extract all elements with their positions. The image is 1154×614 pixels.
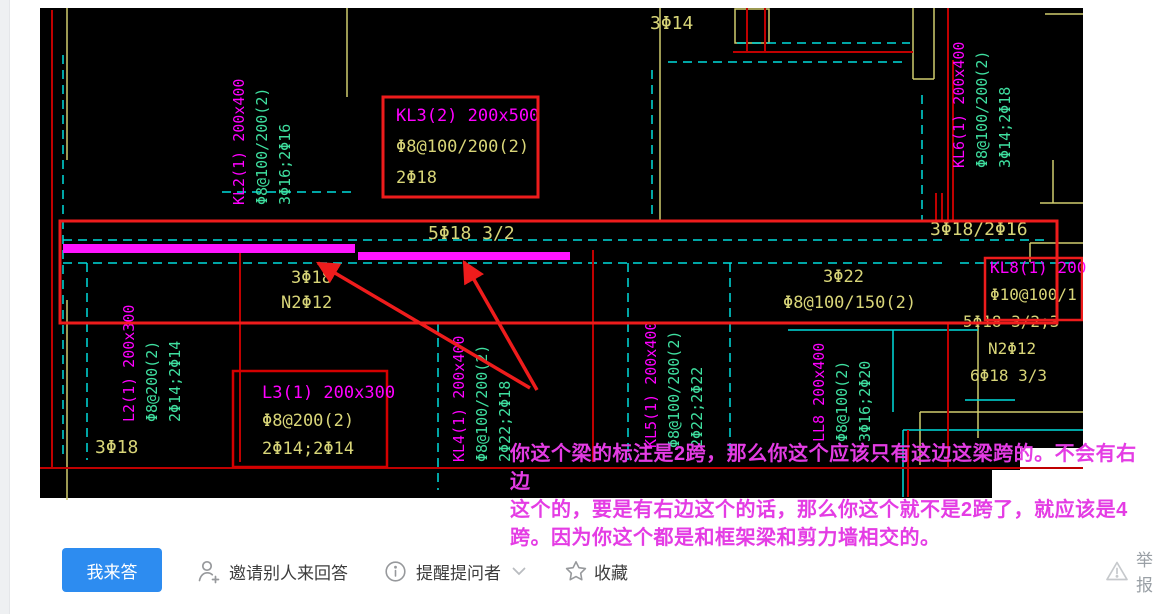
cad-canvas: [40, 8, 1083, 448]
beam-label-l3: L3(1) 200x300 Φ8@200(2) 2Φ14;2Φ14: [262, 379, 395, 463]
beam-rebar: 3Φ16;2Φ16: [274, 79, 297, 205]
beam-stirrup: Φ8@100/200(2): [663, 322, 686, 448]
beam-label-kl2: KL2(1) 200x400 Φ8@100/200(2) 3Φ16;2Φ16: [228, 79, 297, 205]
beam-label-ll8: LL8 200x400 Φ8@100(2) 3Φ16;2Φ20: [808, 343, 877, 442]
invite-label: 邀请别人来回答: [229, 559, 348, 584]
beam-bottom-bars: 6Φ18 3/3: [963, 362, 1086, 389]
beam-name: KL5(1) 200x400: [640, 322, 663, 448]
annotation-line-1: 你这个梁的标注是2跨，那么你这个应该只有这边这梁跨的。不会有右边: [510, 440, 1154, 496]
note-bottomleft-3phi18: 3Φ18: [95, 437, 138, 458]
favorite-label: 收藏: [594, 559, 628, 584]
invite-to-answer-button[interactable]: 邀请别人来回答: [196, 556, 348, 586]
beam-label-kl6: KL6(1) 200x400 Φ8@100/200(2) 3Φ14;2Φ18: [948, 42, 1017, 168]
remind-asker-button[interactable]: 提醒提问者: [384, 556, 526, 586]
note-mid-phi8: Φ8@100/150(2): [783, 290, 916, 316]
beam-name: KL4(1) 200x400: [448, 336, 471, 462]
remind-label: 提醒提问者: [416, 559, 501, 584]
beam-name: KL8(1) 200: [963, 254, 1086, 281]
beam-label-l2: L2(1) 200x300 Φ8@200(2) 2Φ14;2Φ14: [118, 305, 187, 422]
report-label: 举报: [1136, 546, 1154, 596]
answer-annotation-text: 你这个梁的标注是2跨，那么你这个应该只有这边这梁跨的。不会有右边 这个的，要是有…: [510, 440, 1154, 552]
beam-rebar: 3Φ16;2Φ20: [854, 343, 877, 442]
beam-rebar: 2Φ14;2Φ14: [262, 435, 395, 463]
beam-stirrup: Φ8@100/200(2): [971, 42, 994, 168]
favorite-button[interactable]: 收藏: [564, 556, 628, 586]
beam-stirrup: Φ8@100(2): [831, 343, 854, 442]
beam-rebar: 2Φ14;2Φ14: [164, 305, 187, 422]
beam-rebar: 3Φ14;2Φ18: [994, 42, 1017, 168]
beam-name: KL3(2) 200x500: [396, 101, 539, 132]
beam-top-bars: 5Φ18 3/2;3: [963, 308, 1086, 335]
beam-label-kl8: KL8(1) 200 Φ10@100/1 5Φ18 3/2;3 N2Φ12 6Φ…: [963, 254, 1086, 389]
beam-label-kl3: KL3(2) 200x500 Φ8@100/200(2) 2Φ18: [396, 101, 539, 194]
beam-stirrup: Φ8@100/200(2): [251, 79, 274, 205]
annotation-line-2: 这个的，要是有右边这个的话，那么你这个就不是2跨了，就应该是4: [510, 496, 1154, 524]
beam-rebar: 2Φ18: [396, 163, 539, 194]
note-mid-3phi22: 3Φ22: [783, 264, 916, 290]
annotation-line-3: 跨。因为你这个都是和框架梁和剪力墙相交的。: [510, 524, 1154, 552]
beam-stirrup: Φ8@100/200(2): [396, 132, 539, 163]
beam-stirrup: Φ8@200(2): [141, 305, 164, 422]
page-left-gutter: [0, 0, 10, 614]
invite-person-icon: [196, 558, 220, 584]
beam-label-kl5: KL5(1) 200x400 Φ8@100/200(2) 2Φ22;2Φ22: [640, 322, 709, 448]
note-right-3phi18: 3Φ18/2Φ16: [930, 219, 1028, 240]
warning-icon: [1105, 560, 1129, 582]
beam-name: L3(1) 200x300: [262, 379, 395, 407]
beam-stirrup: Φ8@100/200(2): [471, 336, 494, 462]
note-top-3phi14: 3Φ14: [650, 13, 693, 34]
beam-rebar: 2Φ22;2Φ22: [686, 322, 709, 448]
beam-stirrup: Φ10@100/1: [963, 281, 1086, 308]
note-span-5phi18: 5Φ18 3/2: [428, 223, 515, 244]
beam-label-kl4: KL4(1) 200x400 Φ8@100/200(2) 2Φ22;2Φ18: [448, 336, 517, 462]
beam-name: L2(1) 200x300: [118, 305, 141, 422]
info-icon: [384, 560, 407, 583]
note-mid-3phi18: 3Φ18: [281, 266, 332, 291]
qa-page: { "cad_view": { "beam_labels": { "kl2": …: [0, 0, 1154, 614]
note-mid-3phi22-group: 3Φ22 Φ8@100/150(2): [783, 264, 916, 316]
answer-button[interactable]: 我来答: [62, 548, 162, 592]
beam-name: KL6(1) 200x400: [948, 42, 971, 168]
report-button[interactable]: 举报: [1105, 556, 1154, 586]
beam-name: KL2(1) 200x400: [228, 79, 251, 205]
beam-stirrup: Φ8@200(2): [262, 407, 395, 435]
note-mid-span: 3Φ18 N2Φ12: [281, 266, 332, 316]
beam-name: LL8 200x400: [808, 343, 831, 442]
beam-side-bars: N2Φ12: [963, 335, 1086, 362]
chevron-down-icon: [512, 567, 526, 576]
star-icon: [564, 559, 588, 583]
note-mid-n2phi12: N2Φ12: [281, 291, 332, 316]
